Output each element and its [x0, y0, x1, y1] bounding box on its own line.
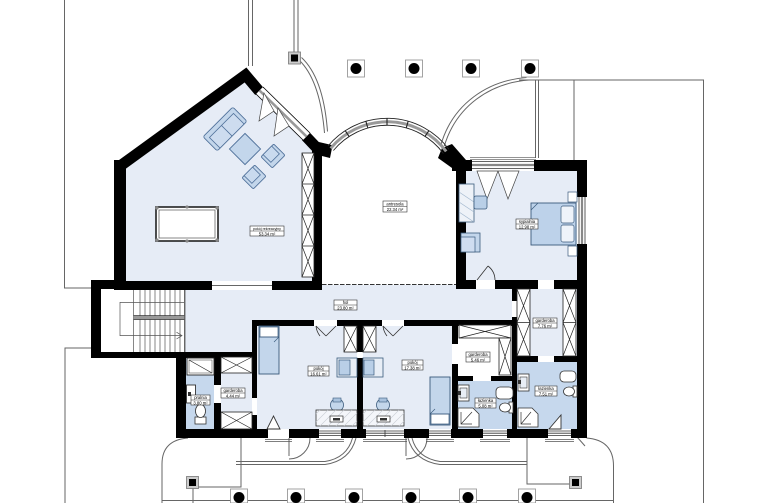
svg-text:23.80 m²: 23.80 m² — [337, 305, 354, 310]
svg-text:antresola: antresola — [386, 202, 404, 207]
svg-text:12.98 m²: 12.98 m² — [519, 224, 536, 229]
svg-text:5.08 m²: 5.08 m² — [478, 403, 493, 408]
svg-text:pokój: pokój — [407, 360, 417, 365]
svg-text:22.34 m²: 22.34 m² — [387, 207, 404, 212]
svg-text:sypialnia: sypialnia — [519, 219, 536, 224]
svg-text:4.44 m²: 4.44 m² — [226, 393, 241, 398]
svg-text:pralnia: pralnia — [194, 395, 207, 400]
svg-text:łazienka: łazienka — [538, 386, 554, 391]
svg-text:garderoba: garderoba — [223, 388, 243, 393]
svg-text:17.38 m²: 17.38 m² — [404, 365, 421, 370]
svg-text:7.51 m²: 7.51 m² — [539, 391, 554, 396]
svg-text:7.76 m²: 7.76 m² — [538, 323, 553, 328]
svg-text:3.80 m²: 3.80 m² — [193, 400, 208, 405]
svg-text:pokój: pokój — [313, 366, 323, 371]
svg-text:hol: hol — [343, 300, 349, 305]
svg-text:garderoba: garderoba — [535, 318, 555, 323]
svg-text:5.46 m²: 5.46 m² — [471, 357, 486, 362]
svg-text:16.61 m²: 16.61 m² — [310, 371, 327, 376]
svg-text:53.34 m²: 53.34 m² — [259, 231, 276, 236]
svg-text:łazienka: łazienka — [478, 398, 494, 403]
svg-text:garderoba: garderoba — [468, 352, 488, 357]
